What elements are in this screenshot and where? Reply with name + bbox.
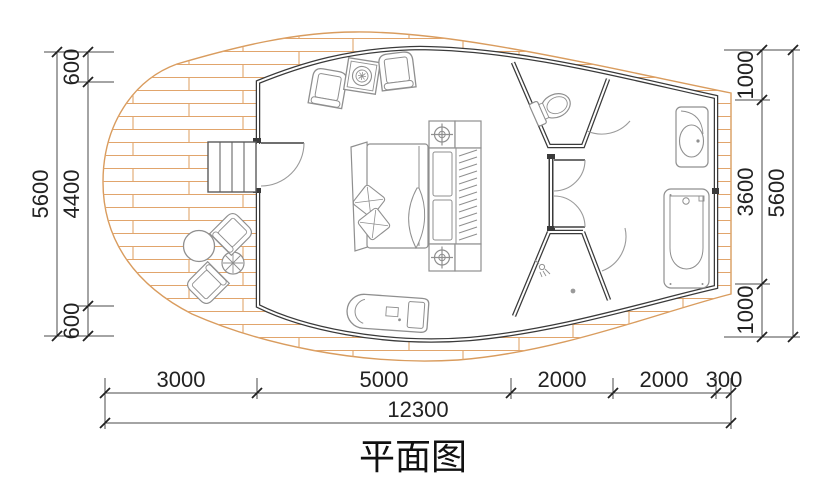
floor-plan-page: 600 4400 600 5600 1000 3600 1000 5600 30…	[0, 0, 837, 496]
page-title: 平面图	[359, 436, 467, 477]
dim-left-4400: 4400	[59, 170, 84, 219]
dim-bottom-3000: 3000	[157, 367, 206, 392]
washbasin	[676, 107, 708, 167]
armchair-left	[308, 67, 348, 108]
entry-stairs	[208, 142, 256, 192]
floor-plan-svg: 600 4400 600 5600 1000 3600 1000 5600 30…	[0, 0, 837, 496]
side-table	[344, 58, 381, 95]
dim-left-total-5600: 5600	[28, 170, 53, 219]
dim-right-total-5600: 5600	[764, 169, 789, 218]
dim-bottom-2000-a: 2000	[538, 367, 587, 392]
floor-drain-icon	[571, 289, 576, 294]
dim-left-600-bottom: 600	[59, 303, 84, 340]
shelf-bottom	[455, 244, 481, 271]
wardrobe-group	[429, 121, 481, 271]
dim-bottom-5000: 5000	[360, 367, 409, 392]
right-wall-jamb	[712, 188, 719, 194]
faucet-icon	[696, 139, 699, 142]
dim-bottom-total-12300: 12300	[387, 397, 448, 422]
corridor-jamb-bottom	[547, 226, 555, 231]
dim-right-1000-top: 1000	[733, 51, 758, 100]
bed-group	[351, 142, 428, 251]
outdoor-side-table	[222, 252, 244, 274]
chaise-lounge	[346, 293, 429, 333]
dim-right-3600: 3600	[733, 168, 758, 217]
corridor-jamb-top	[547, 154, 555, 159]
bathtub	[664, 189, 709, 288]
shelf-top	[455, 121, 481, 148]
outdoor-round-table	[184, 231, 215, 262]
armchair-right	[378, 51, 416, 91]
dim-right-1000-bottom: 1000	[733, 286, 758, 335]
dim-bottom-300: 300	[706, 367, 743, 392]
dim-bottom-2000-b: 2000	[640, 367, 689, 392]
dim-left-600-top: 600	[59, 49, 84, 86]
